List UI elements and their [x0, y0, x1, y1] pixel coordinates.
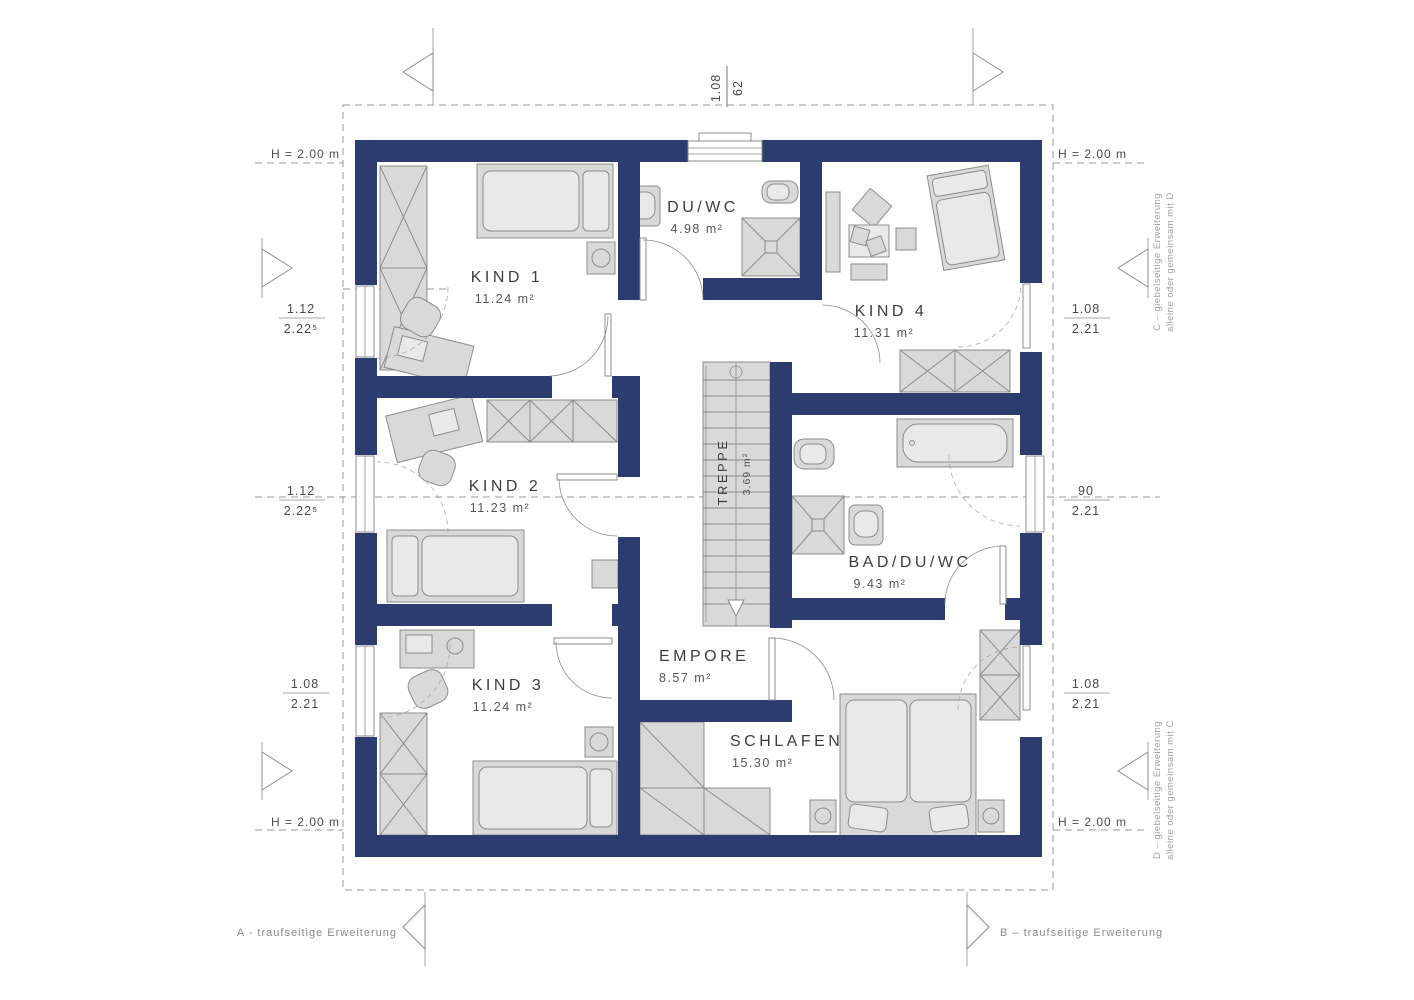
section-marker-top-left	[403, 53, 433, 91]
room-area-kind4: 11.31 m²	[854, 326, 914, 340]
room-label-kind2: KIND 2	[469, 478, 542, 495]
room-label-duwc: DU/WC	[667, 199, 739, 216]
furniture-kind4	[826, 165, 1010, 392]
height-label-top-right: H = 2.00 m	[1058, 147, 1127, 161]
room-area-treppe: 3.69 m²	[741, 453, 753, 496]
dim-top-1: 1.08	[709, 74, 723, 102]
room-area-bad: 9.43 m²	[854, 577, 907, 591]
height-label-bottom-left: H = 2.00 m	[271, 815, 340, 829]
height-label-top-left: H = 2.00 m	[271, 147, 340, 161]
room-label-kind1: KIND 1	[471, 269, 544, 286]
room-area-duwc: 4.98 m²	[671, 222, 724, 236]
annotation-ext-d-line1: D – giebelseitige Erweiterung	[1152, 721, 1163, 859]
room-area-kind1: 11.24 m²	[475, 292, 535, 306]
room-area-kind2: 11.23 m²	[470, 501, 530, 515]
dim-left-3-num: 1.08	[291, 677, 319, 691]
section-marker-bottom-left	[403, 905, 425, 949]
dim-right-1-den: 2.21	[1072, 322, 1100, 336]
dim-left-2-den: 2.22⁵	[284, 504, 319, 518]
room-label-kind4: KIND 4	[855, 303, 928, 320]
dim-right-3-den: 2.21	[1072, 697, 1100, 711]
dim-right-2-den: 2.21	[1072, 504, 1100, 518]
furniture-kind2	[386, 395, 618, 602]
room-area-schlafen: 15.30 m²	[732, 756, 793, 770]
section-marker-bottom-right	[967, 905, 989, 949]
dim-right-3-num: 1.08	[1072, 677, 1100, 691]
height-label-bottom-right: H = 2.00 m	[1058, 815, 1127, 829]
room-label-bad: BAD/DU/WC	[848, 554, 971, 571]
floor-plan-canvas: KIND 1 11.24 m² DU/WC 4.98 m² KIND 4 11.…	[0, 0, 1414, 1000]
section-marker-right-upper	[1118, 249, 1148, 287]
furniture-bad	[792, 419, 1013, 554]
furniture-kind3	[380, 630, 617, 835]
room-area-empore: 8.57 m²	[659, 671, 712, 685]
room-label-empore: EMPORE	[659, 648, 749, 665]
room-label-schlafen: SCHLAFEN	[730, 733, 843, 750]
dim-top-2: 62	[731, 80, 745, 96]
dim-left-1-den: 2.22⁵	[284, 322, 319, 336]
section-marker-top-right	[973, 53, 1003, 91]
section-marker-right-lower	[1118, 752, 1148, 790]
section-marker-left-lower	[262, 752, 292, 790]
annotation-ext-c-line2: alleine oder gemeinsam mit D	[1165, 192, 1176, 332]
room-area-kind3: 11.24 m²	[473, 700, 533, 714]
top-window	[688, 141, 762, 161]
room-label-treppe: TREPPE	[715, 438, 730, 505]
dim-right-2-num: 90	[1078, 484, 1094, 498]
annotation-section-b: B – traufseitige Erweiterung	[1000, 927, 1163, 939]
dim-right-1-num: 1.08	[1072, 302, 1100, 316]
annotation-ext-c-line1: C – giebelseitige Erweiterung	[1152, 193, 1163, 331]
dim-left-1-num: 1.12	[287, 302, 315, 316]
annotation-ext-d-line2: alleine oder gemeinsam mit C	[1165, 720, 1176, 860]
dim-left-2-num: 1.12	[287, 484, 315, 498]
annotation-section-a: A - traufseitige Erweiterung	[237, 927, 397, 939]
dim-left-3-den: 2.21	[291, 697, 319, 711]
staircase	[703, 362, 770, 626]
room-label-kind3: KIND 3	[472, 677, 545, 694]
section-marker-left-upper	[262, 249, 292, 287]
